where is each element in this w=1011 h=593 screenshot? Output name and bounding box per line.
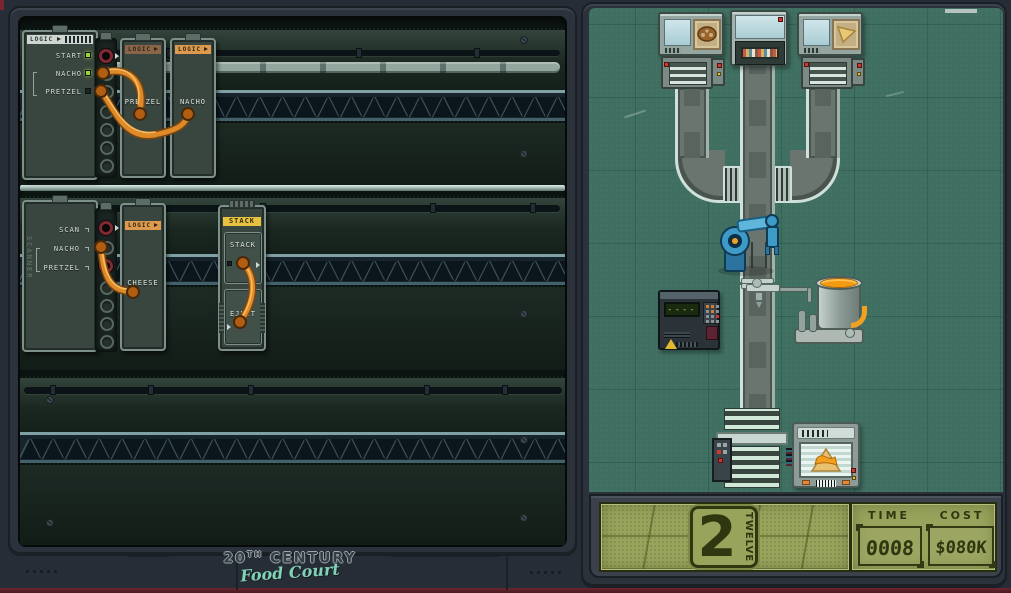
display-top-bar [797,427,855,439]
port-label-stack: STACK [225,241,261,249]
pretzel-machine[interactable] [658,12,724,56]
time-display: 8888 0008 [858,526,922,566]
vent-ribs [219,303,224,333]
mount-tab [100,32,112,40]
scanner-board[interactable]: SCANNER SCAN NACHO PRETZEL [22,200,98,352]
board-header-label: LOGIC [30,36,53,43]
status-led [857,63,862,68]
chip-hopper-machine[interactable] [730,10,788,66]
screw [520,436,528,444]
playfield: ------ [589,8,1003,492]
belt-merge-right[interactable] [774,166,792,203]
module-name: PRETZEL [122,98,164,106]
tortilla-chip-icon [834,23,858,45]
status-led [664,62,669,67]
vent-ribs [260,303,265,333]
scanner-grille [676,342,698,347]
tick-mark [85,266,89,270]
dispenser-rollers [669,62,707,85]
status-led [804,62,809,67]
main-logic-board[interactable]: LOGIC START NACHO PRETZEL [22,30,98,180]
belt-left[interactable] [675,88,709,158]
mount-tab [185,33,201,41]
signal-label-pretzel: PRETZEL [45,88,82,96]
empty-socket[interactable] [100,141,114,155]
arrow-icon [115,53,119,59]
chip-dispenser [801,56,853,89]
scanner-side-label: SCANNER [25,236,33,280]
machine-window [664,19,691,46]
signal-bracket [36,248,40,272]
empty-socket[interactable] [100,299,114,313]
scanner-machine[interactable]: ------ [658,290,720,350]
cost-display: $888K $080K [928,526,994,566]
vent-ticks [802,430,828,437]
arrow-icon [227,324,231,330]
vat-pipe [798,310,806,332]
applicator-nozzle [755,292,763,301]
mount-tab [100,202,112,210]
start-led [85,52,91,58]
screw [520,310,528,318]
time-value: 0008 [859,536,921,560]
eject-port-panel: EJECT [224,289,262,345]
screw [520,36,528,44]
rack3-lower [20,463,565,545]
hose-valve [845,328,855,338]
empty-socket[interactable] [100,105,114,119]
vat-pipe [809,314,817,332]
stack-port-panel: STACK [224,232,262,284]
vent-dots [530,571,561,574]
status-led [778,17,783,22]
board-header: LOGIC [27,35,93,44]
control-buttons [717,443,721,447]
status-led [717,63,722,68]
arm-claw-left [765,246,770,255]
screw [520,150,528,158]
module-header-label: LOGIC [128,222,151,229]
dispenser-rollers [809,62,847,85]
stack-header: STACK [223,217,261,226]
level-badge: 2 TWELVE [690,506,758,568]
signal-label-scan: SCAN [59,226,80,234]
arm-wrist [766,226,779,248]
signal-label-nacho: NACHO [54,245,80,253]
nacho-with-cheese-icon [806,445,846,475]
module-stack[interactable]: STACK STACK EJECT [218,205,266,351]
rack3-cable [24,387,562,394]
goal-screen [799,442,853,478]
arrow-icon [115,225,119,231]
module-header-label: LOGIC [128,46,151,53]
scanner-keypad [703,302,718,324]
port-led [227,261,232,266]
nacho-socket-2[interactable] [100,241,114,255]
empty-socket[interactable] [100,123,114,137]
vent-dots [26,570,57,573]
output-control-box [712,438,732,482]
pretzel-led [85,88,91,94]
signal-bracket [33,72,37,96]
cheese-hose [851,306,867,328]
level-number: 2 [695,505,739,570]
output-rollers-bottom [724,446,780,488]
belt-slot [751,242,753,268]
applicator-bracket [746,284,780,292]
mount-tab [229,200,255,208]
module-header: LOGIC [125,221,161,230]
time-label: TIME [854,509,924,522]
cost-label: COST [928,509,996,522]
module-header-label: LOGIC [178,46,201,53]
arrow-icon [154,223,158,227]
keypad-buttons [706,305,709,308]
status-led [717,72,721,76]
food-court-machine: ▲▼▲▼▲▼▲▼▲▼▲▼▲▼▲▼▲▼▲▼▲▼▲▼▲▼▲▼▲▼▲▼▲▼▲▼▲▼▲▼… [0,0,1011,593]
socket-strip-1 [95,38,117,178]
module-header: LOGIC [125,45,161,54]
nozzle-tip-icon [756,302,762,308]
empty-socket[interactable] [100,335,114,349]
scanner-side-panel [706,326,718,340]
scratch-decor [624,110,646,119]
pretzel-socket-2[interactable] [99,259,113,273]
cheese-surface [820,278,858,288]
chip-machine[interactable] [797,12,863,56]
barcode-decor [65,36,91,43]
cost-value: $080K [929,538,992,558]
module-nacho[interactable]: LOGIC NACHO [170,38,216,178]
arrow-icon [154,47,158,51]
arm-accent [732,238,738,244]
signal-label-pretzel: PRETZEL [43,264,80,272]
mount-tab [52,25,68,33]
tick-mark [85,247,89,251]
module-name: NACHO [172,98,214,106]
hopper-opening [735,41,785,65]
game-logo: 20TH CENTURY Food Court [180,550,400,582]
empty-socket[interactable] [100,281,114,295]
module-pretzel[interactable]: LOGIC PRETZEL [120,38,166,178]
tick-mark [85,228,89,232]
scoreboard-right-lcd: TIME COST 8888 0008 $888K $080K [849,502,997,572]
empty-socket[interactable] [100,159,114,173]
machine-screen [832,19,860,50]
module-cheese[interactable]: LOGIC CHEESE [120,203,166,351]
arrow-icon [57,37,61,41]
belt-merge-left[interactable] [723,166,741,203]
clip-decor [802,480,810,485]
machine-window [803,19,830,46]
signal-label-start: START [56,52,82,60]
clip-decor [842,480,850,485]
goal-display[interactable] [792,422,860,488]
port-label-eject: EJECT [225,310,261,318]
chassis-red-notch [0,0,4,10]
status-led [851,468,856,473]
vent-ticks [665,48,681,53]
rail-strip [945,9,977,13]
pretzel-icon [695,23,719,45]
nacho-socket[interactable] [100,67,114,81]
side-unit [851,58,865,86]
status-led [857,72,861,76]
output-rollers-top [724,408,780,430]
mount-tab [135,33,151,41]
screw [46,519,54,527]
scanner-screen: ------ [664,302,700,317]
mount-tab [52,195,68,203]
status-led [852,476,856,480]
module-header: LOGIC [175,45,211,54]
rack3-truss-rail: ▲▼▲▼▲▼▲▼▲▼▲▼▲▼▲▼▲▼▲▼▲▼▲▼▲▼▲▼▲▼▲▼▲▼▲▼▲▼▲▼… [20,432,565,463]
socket-strip-2 [95,208,117,352]
machine-screen [693,19,721,50]
applicator-mount [752,278,762,288]
nacho-led [85,70,91,76]
cheese-pipe [807,287,812,303]
module-name: CHEESE [122,279,164,287]
arrow-icon [204,47,208,51]
arrow-icon [256,262,260,268]
pretzel-socket[interactable] [100,85,114,99]
screw [520,514,528,522]
belt-right[interactable] [806,88,840,158]
scratch-decor [886,91,904,97]
start-socket[interactable] [99,49,113,63]
vent-ticks [804,48,820,53]
scanner-vents [664,332,690,338]
chip-tray [741,47,779,59]
level-word: TWELVE [743,512,754,562]
screw [46,396,54,404]
mount-tab [135,198,151,206]
shelf-divider [20,185,565,191]
signal-label-nacho: NACHO [56,70,82,78]
barcode-decor [816,480,836,487]
rack3-back [20,376,565,432]
status-led [718,458,723,463]
scan-socket[interactable] [99,221,113,235]
arm-claw-right [774,246,779,255]
empty-socket[interactable] [100,317,114,331]
scanner-top-strip [660,292,718,299]
truss-pattern: ▲▼▲▼▲▼▲▼▲▼▲▼▲▼▲▼▲▼▲▼▲▼▲▼▲▼▲▼▲▼▲▼▲▼▲▼▲▼▲▼… [20,435,565,460]
scoreboard: 2 TWELVE TIME COST 8888 0008 $888K $080K [589,494,1003,578]
pretzel-dispenser [661,56,713,89]
side-unit [711,58,725,86]
